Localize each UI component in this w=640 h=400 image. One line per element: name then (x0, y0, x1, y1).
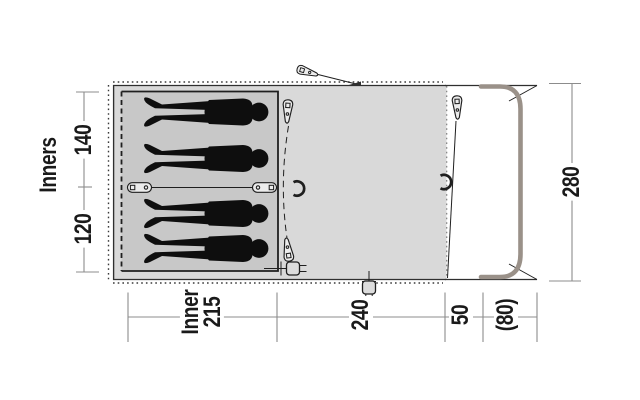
dim-front-gap: 50 (449, 302, 473, 329)
floorplan-drawing (0, 0, 640, 400)
dim-inner-length-value: 215 (202, 290, 224, 335)
tent-peg-icon (452, 96, 462, 120)
toggle-peg-icon (253, 183, 277, 193)
dim-inner-width-bottom: 120 (72, 210, 96, 247)
front-pole (481, 87, 521, 278)
dim-living-length: 240 (349, 296, 373, 333)
dim-tent-depth: 280 (560, 163, 584, 200)
guy-line (296, 64, 361, 85)
dim-inner-width-top: 140 (72, 121, 96, 158)
guy-peg-icon (296, 64, 319, 79)
toggle-peg-icon (128, 183, 152, 193)
dim-inner-length: Inner 215 (180, 286, 224, 337)
tent-floorplan-diagram: Inners 140 120 280 Inner 215 240 50 (80) (0, 0, 640, 400)
inners-label: Inners (37, 137, 61, 192)
dim-canopy-depth: (80) (494, 296, 518, 335)
